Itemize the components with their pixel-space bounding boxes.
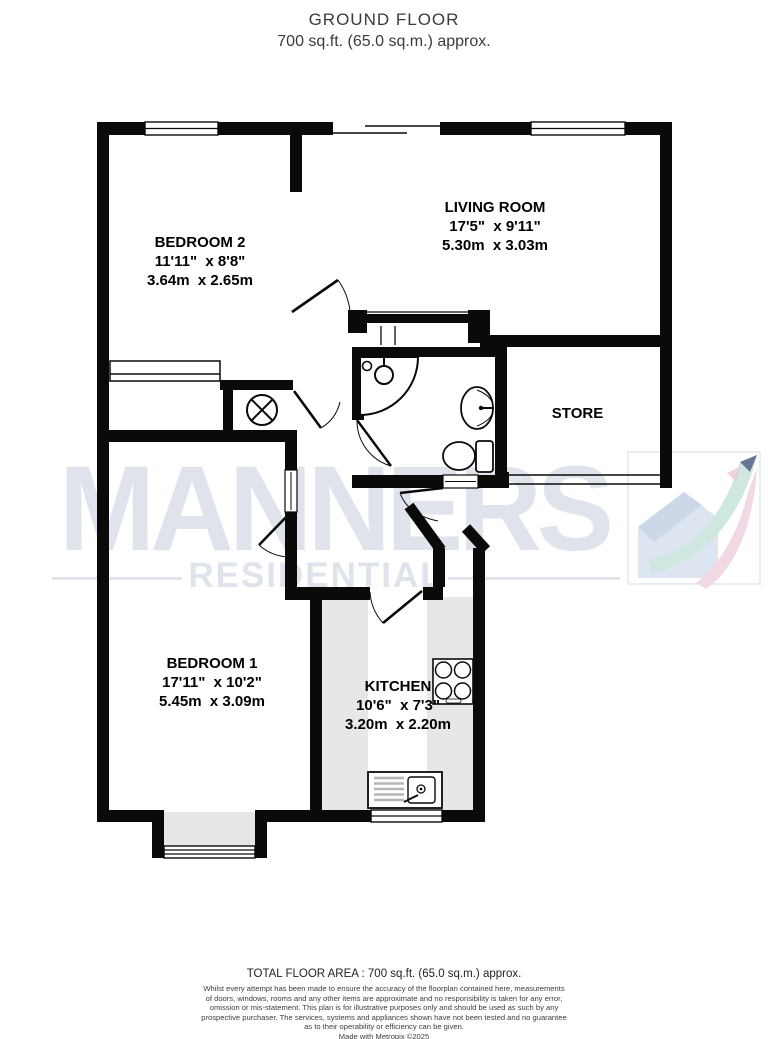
kitchen-door [370,591,422,623]
disclaimer-line: prospective purchaser. The services, sys… [0,1013,768,1023]
shower-door [357,420,391,466]
kitchen-window [371,810,442,822]
plan-title-block: GROUND FLOOR 700 sq.ft. (65.0 sq.m.) app… [0,10,768,51]
bedroom2-name: BEDROOM 2 [110,233,290,252]
kitchen-imperial: 10'6" x 7'3" [318,696,478,715]
toilet [443,441,493,472]
plan-footer: TOTAL FLOOR AREA : 700 sq.ft. (65.0 sq.m… [0,968,768,1039]
kitchen-name: KITCHEN [318,677,478,696]
entrance-boundary-lines [333,126,440,133]
kitchen-label: KITCHEN 10'6" x 7'3" 3.20m x 2.20m [318,677,478,734]
kitchen-sink [368,772,442,808]
bathroom-doorway [443,475,478,488]
living-room-window [531,122,625,135]
floorplan-drawing [0,0,768,1039]
bedroom2-window [145,122,218,135]
disclaimer-line: of doors, windows, rooms and any other i… [0,994,768,1004]
bathroom-door [400,488,443,521]
angled-hall-walls [409,506,486,550]
floor-title: GROUND FLOOR [0,10,768,30]
kitchen-metric: 3.20m x 2.20m [318,715,478,734]
total-floor-area: TOTAL FLOOR AREA : 700 sq.ft. (65.0 sq.m… [0,968,768,980]
disclaimer-text: Whilst every attempt has been made to en… [0,984,768,1032]
living-room-metric: 5.30m x 3.03m [400,236,590,255]
bedroom1-metric: 5.45m x 3.09m [122,692,302,711]
disclaimer-line: as to their operability or efficiency ca… [0,1022,768,1032]
bay-window [164,846,255,858]
store-label: STORE [520,404,635,423]
store-name: STORE [520,404,635,423]
floorplan-page: GROUND FLOOR 700 sq.ft. (65.0 sq.m.) app… [0,0,768,1039]
bedroom2-imperial: 11'11" x 8'8" [110,252,290,271]
bay-window-sill [164,812,255,846]
bedroom2-metric: 3.64m x 2.65m [110,271,290,290]
disclaimer-line: omission or mis-statement. This plan is … [0,1003,768,1013]
store-open-front [509,475,660,484]
cylinder-cupboard-symbol [247,395,277,425]
living-room-label: LIVING ROOM 17'5" x 9'11" 5.30m x 3.03m [400,198,590,255]
disclaimer-line: Whilst every attempt has been made to en… [0,984,768,994]
wardrobe [110,361,220,381]
metropix-credit: Made with Metropix ©2025 [0,1032,768,1039]
cupboard-door [294,391,340,428]
floor-area-subtitle: 700 sq.ft. (65.0 sq.m.) approx. [0,33,768,51]
bathroom-fixtures [360,357,494,472]
living-room-imperial: 17'5" x 9'11" [400,217,590,236]
corner-shower [360,357,418,415]
living-room-name: LIVING ROOM [400,198,590,217]
bedroom2-door [292,280,350,312]
bedroom1-label: BEDROOM 1 17'11" x 10'2" 5.45m x 3.09m [122,654,302,711]
bedroom1-imperial: 17'11" x 10'2" [122,673,302,692]
bedroom2-label: BEDROOM 2 11'11" x 8'8" 3.64m x 2.65m [110,233,290,290]
bedroom1-doorway [285,470,297,512]
basin [461,387,494,429]
bedroom1-name: BEDROOM 1 [122,654,302,673]
